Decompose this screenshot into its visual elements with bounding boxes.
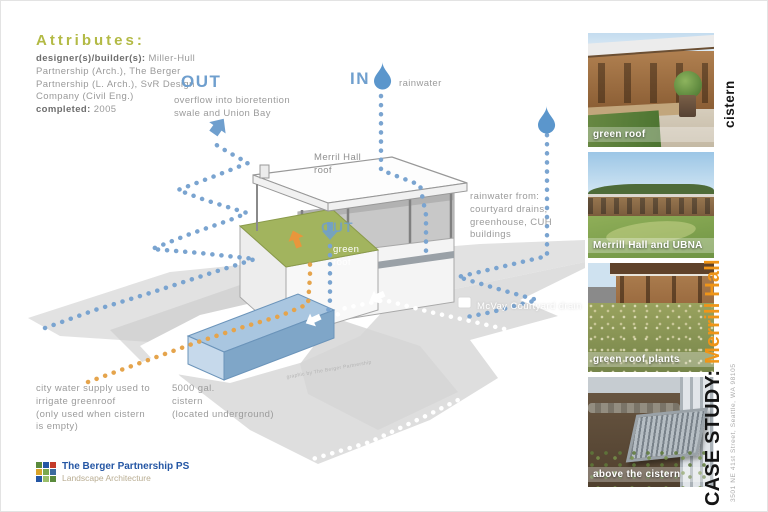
in-label: IN (350, 69, 370, 89)
cistern-caption: 5000 gal. cistern (located underground) (172, 383, 322, 421)
roof-vent (260, 165, 269, 178)
greenroof-label: green roof (333, 244, 359, 270)
logo-company-name: The Berger Partnership PS (62, 461, 189, 473)
rainwater-label: rainwater (399, 78, 442, 91)
completed-value: 2005 (94, 104, 117, 115)
mcvay-drain-label: McVay Courtyard drain (477, 301, 582, 314)
logo-tagline: Landscape Architecture (62, 473, 189, 483)
photo1-planter-pot (679, 95, 696, 117)
designer-label: designer(s)/builder(s): (36, 53, 146, 64)
out-label: OUT (181, 72, 221, 92)
photo3-roof (610, 263, 714, 274)
photo-label: Merrill Hall and UBNA (588, 238, 714, 253)
case-study-prefix: CASE STUDY: (702, 364, 724, 506)
case-study-slide: Attributes: designer(s)/builder(s): Mill… (0, 0, 768, 512)
photo-label: green roof plants (588, 352, 714, 367)
merrill-hall-roof-label: Merril Hall roof (314, 152, 361, 178)
case-study-title: CASE STUDY: Merrill Hall (702, 250, 725, 506)
case-study-address: 3501 NE 41st Street, Seattle, WA 98105 (730, 296, 737, 502)
case-study-name: Merrill Hall (702, 259, 724, 364)
courtyard-drain-icon (458, 297, 471, 308)
logo-icon (36, 462, 56, 482)
attributes-heading: Attributes: (36, 32, 208, 49)
photo-label: green roof (588, 127, 714, 142)
out-description: overflow into bioretention swale and Uni… (174, 95, 324, 121)
rainwater-sources-label: rainwater from: courtyard drains, greenh… (470, 191, 582, 242)
berger-partnership-logo: The Berger Partnership PS Landscape Arch… (36, 461, 189, 483)
side-label-cistern: cistern (722, 28, 737, 128)
city-water-label: city water supply used to irrigate green… (36, 383, 176, 434)
photo-label: above the cistern (588, 467, 714, 482)
courtyard-droplet-icon (538, 106, 555, 134)
photo-green-roof-plants: green roof plants (588, 263, 714, 372)
photo-green-roof: green roof (588, 33, 714, 147)
photo-above-the-cistern: above the cistern (588, 377, 714, 487)
photo2-windows (588, 198, 714, 214)
greenroof-out-label: OUT (321, 219, 354, 235)
photo-merrill-hall-ubna: Merrill Hall and UBNA (588, 152, 714, 258)
rain-droplet-icon (374, 62, 391, 90)
completed-label: completed: (36, 104, 91, 115)
